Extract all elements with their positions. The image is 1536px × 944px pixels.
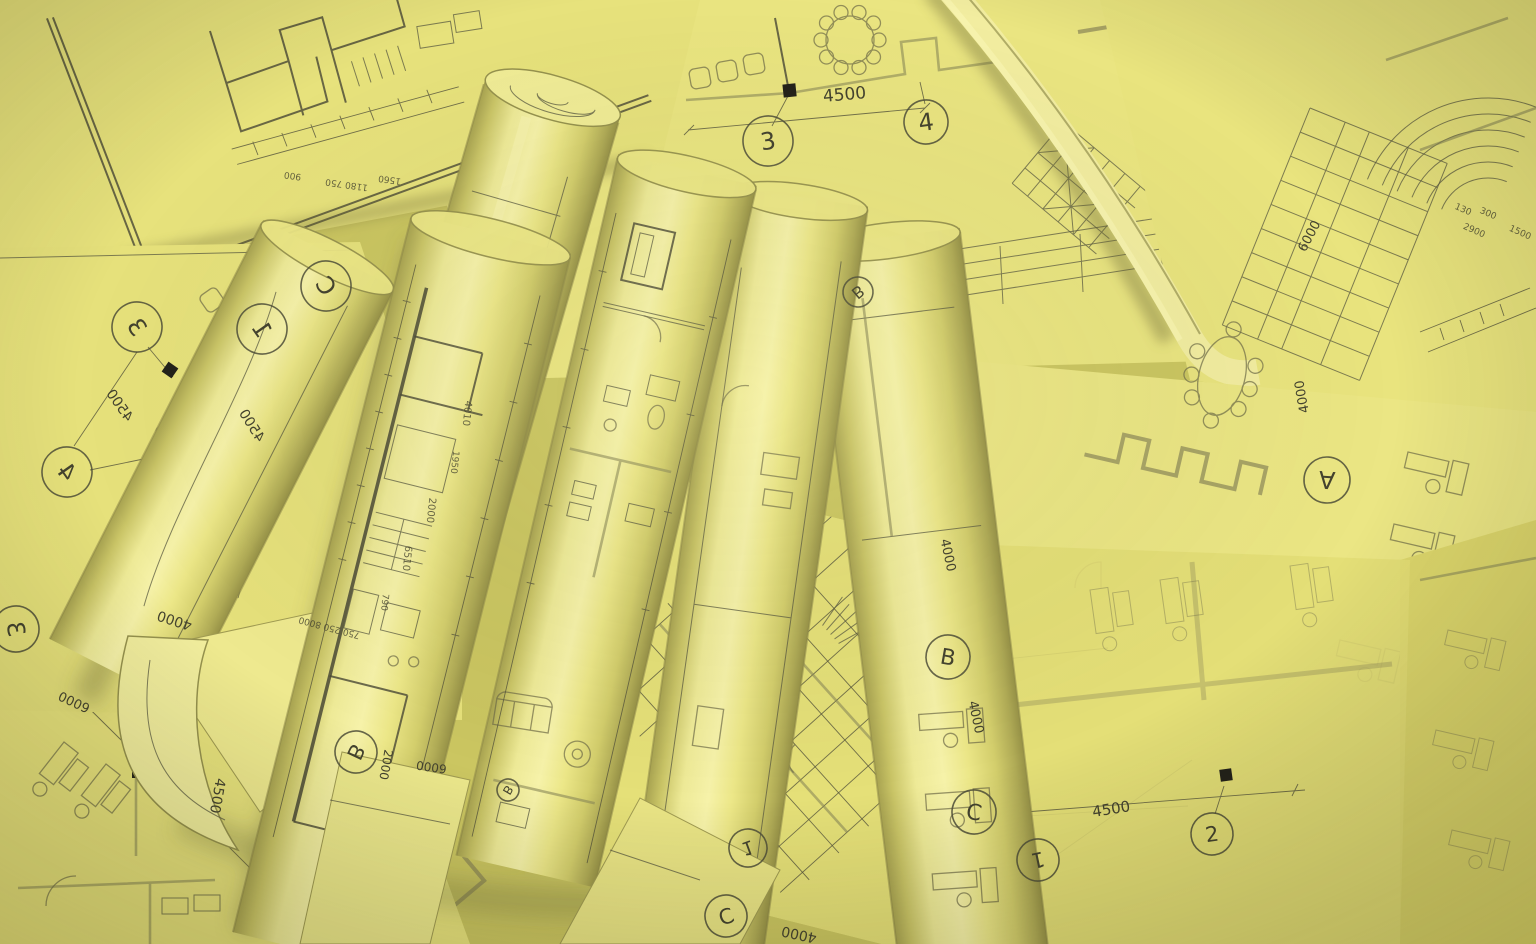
blueprint-photo: 3 4 C 3 1 4 3 B B B C 1 2 A C 1 B 4500 4…	[0, 0, 1536, 944]
blueprint-scene: 3 4 C 3 1 4 3 B B B C 1 2 A C 1 B 4500 4…	[0, 0, 1536, 944]
vignette	[0, 0, 1536, 944]
